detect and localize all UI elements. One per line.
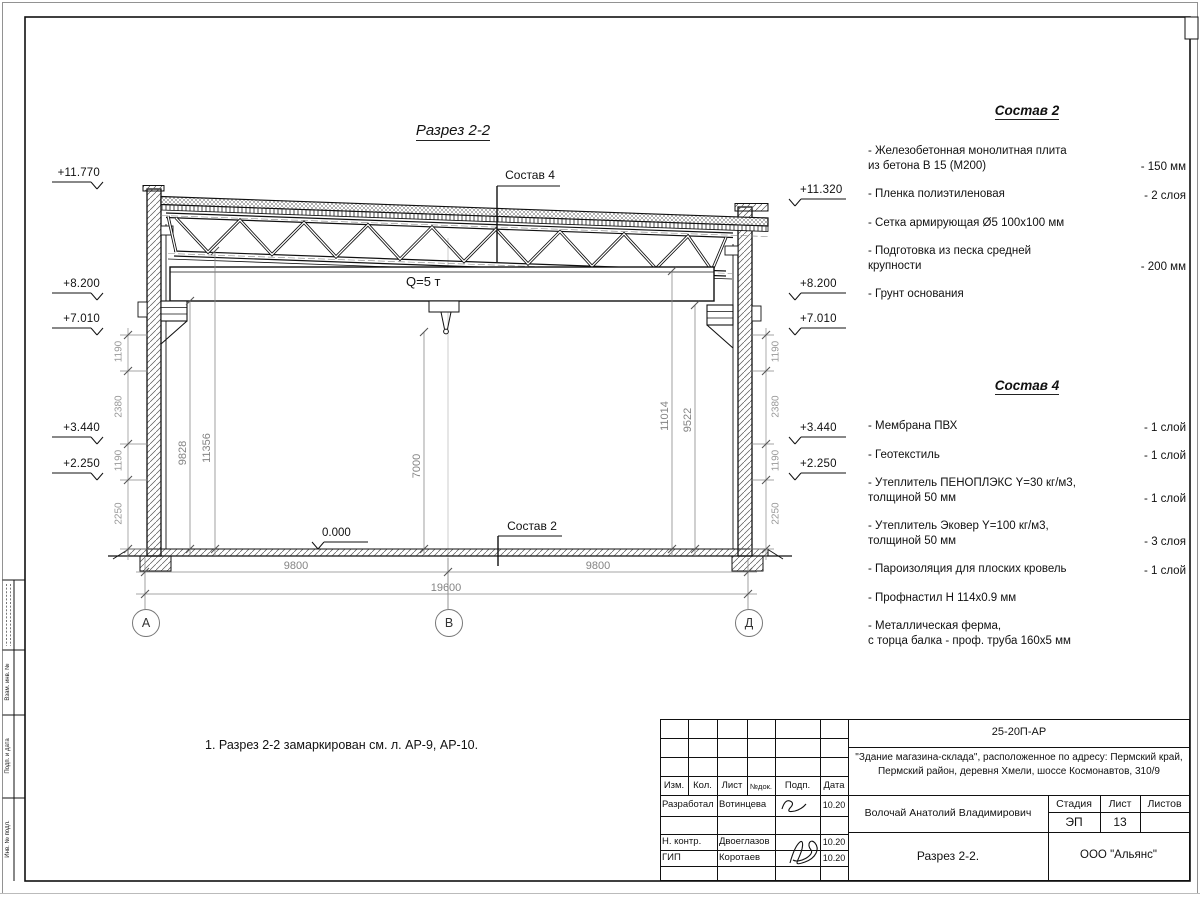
chain-left-2380: 2380 xyxy=(114,382,125,432)
tb-company: ООО "Альянс" xyxy=(1048,849,1189,861)
side-stamp-label-podp: Подп. и дата xyxy=(5,716,11,796)
chain-right-2380: 2380 xyxy=(771,382,782,432)
list-item: - Утеплитель Эковер Y=100 кг/м3, толщино… xyxy=(868,519,1186,548)
dim-9522: 9522 xyxy=(682,385,694,455)
chain-left-1190a: 1190 xyxy=(114,327,125,377)
tb-name-ncontrol: Двоеглазов xyxy=(719,836,774,847)
list-item: - Геотекстиль- 1 слой xyxy=(868,448,1186,463)
tb-stage-value: ЭП xyxy=(1048,815,1100,829)
tb-col-list: Лист xyxy=(717,780,747,791)
tb-col-ndok: №док. xyxy=(747,782,775,791)
elevation-right-8200: +8.200 xyxy=(800,278,837,290)
tb-sheet-title: Разрез 2-2. xyxy=(848,849,1048,863)
elevation-right-3440: +3.440 xyxy=(800,422,837,434)
drawing-sheet: Разрез 2-2 Q=5 т Состав 4 Состав 2 0.000… xyxy=(0,0,1200,900)
tb-project-line2: Пермский район, деревня Хмели, шоссе Кос… xyxy=(850,766,1188,777)
axis-bubble-a: А xyxy=(132,609,160,637)
tb-doc-number: 25-20П-АР xyxy=(848,726,1190,738)
tb-project-line1: "Здание магазина-склада", расположенное … xyxy=(850,752,1188,763)
tb-col-data: Дата xyxy=(820,780,848,791)
tb-date-ncontrol: 10.20 xyxy=(820,837,848,847)
side-stamp-label-inv: Инв. № подл. xyxy=(5,799,11,879)
tb-sheet-number: 13 xyxy=(1100,815,1140,829)
axis-bubble-d: Д xyxy=(735,609,763,637)
elevation-left-8200: +8.200 xyxy=(40,278,100,290)
tb-col-izm: Изм. xyxy=(660,780,688,791)
list-item: - Подготовка из песка средней крупности-… xyxy=(868,244,1186,273)
chain-left-2250: 2250 xyxy=(114,489,125,539)
tb-col-podp: Подп. xyxy=(775,780,820,791)
tb-sheet-label: Лист xyxy=(1100,798,1140,810)
tb-name-gip: Коротаев xyxy=(719,852,774,863)
tb-role-ncontrol: Н. контр. xyxy=(662,836,716,847)
dim-9800-right: 9800 xyxy=(568,560,628,572)
title-block: Изм. Кол. Лист №док. Подп. Дата Разработ… xyxy=(660,719,1190,881)
tb-name-developer: Вотинцева xyxy=(719,799,774,810)
list-item: - Пленка полиэтиленовая- 2 слоя xyxy=(868,187,1186,202)
dim-11356: 11356 xyxy=(201,413,213,483)
elevation-right-2250: +2.250 xyxy=(800,458,837,470)
elevation-left-7010: +7.010 xyxy=(40,313,100,325)
list-item: - Сетка армирующая Ø5 100х100 мм xyxy=(868,216,1186,231)
composition-2-block: Состав 2 - Железобетонная монолитная пли… xyxy=(868,103,1186,316)
dim-9800-left: 9800 xyxy=(266,560,326,572)
list-item: - Мембрана ПВХ- 1 слой xyxy=(868,419,1186,434)
side-stamp-label-vzam: Взам. инв. № xyxy=(5,642,11,722)
tb-sheets-label: Листов xyxy=(1140,798,1189,810)
crane-capacity-label: Q=5 т xyxy=(406,274,441,289)
composition-4-heading: Состав 4 xyxy=(868,378,1186,395)
chain-right-1190a: 1190 xyxy=(771,327,782,377)
chain-left-1190b: 1190 xyxy=(114,436,125,486)
elevation-left-2250: +2.250 xyxy=(40,458,100,470)
list-item: - Железобетонная монолитная плита из бет… xyxy=(868,144,1186,173)
dim-11014: 11014 xyxy=(659,381,671,451)
dim-19600: 19600 xyxy=(411,582,481,594)
tb-role-developer: Разработал xyxy=(662,799,716,810)
elevation-right-11320: +11.320 xyxy=(800,184,842,196)
elevation-left-11770: +11.770 xyxy=(40,167,100,179)
list-item: - Пароизоляция для плоских кровель- 1 сл… xyxy=(868,562,1186,577)
sheet-note: 1. Разрез 2-2 замаркирован см. л. АР-9, … xyxy=(205,738,478,752)
sostav2-ref-label: Состав 2 xyxy=(500,519,564,533)
list-item: - Утеплитель ПЕНОПЛЭКС Y=30 кг/м3, толщи… xyxy=(868,476,1186,505)
list-item: - Грунт основания xyxy=(868,287,1186,302)
tb-client: Волочай Анатолий Владимирович xyxy=(848,807,1048,819)
list-item: - Металлическая ферма, с торца балка - п… xyxy=(868,619,1186,648)
chain-right-1190b: 1190 xyxy=(771,436,782,486)
tb-col-kol: Кол. xyxy=(688,780,717,791)
tb-stage-label: Стадия xyxy=(1048,798,1100,810)
dim-7000: 7000 xyxy=(411,431,423,501)
tb-role-gip: ГИП xyxy=(662,852,716,863)
chain-right-2250: 2250 xyxy=(771,489,782,539)
tb-date-developer: 10.20 xyxy=(820,800,848,810)
composition-2-heading: Состав 2 xyxy=(868,103,1186,120)
zero-level-label: 0.000 xyxy=(322,527,351,539)
list-item: - Профнастил Н 114х0.9 мм xyxy=(868,591,1186,606)
tb-date-gip: 10.20 xyxy=(820,853,848,863)
composition-4-block: Состав 4 - Мембрана ПВХ- 1 слой - Геотек… xyxy=(868,378,1186,662)
sostav4-ref-label: Состав 4 xyxy=(498,168,562,182)
elevation-right-7010: +7.010 xyxy=(800,313,837,325)
axis-bubble-v: В xyxy=(435,609,463,637)
view-title: Разрез 2-2 xyxy=(388,122,518,141)
dim-9828: 9828 xyxy=(177,418,189,488)
elevation-left-3440: +3.440 xyxy=(40,422,100,434)
